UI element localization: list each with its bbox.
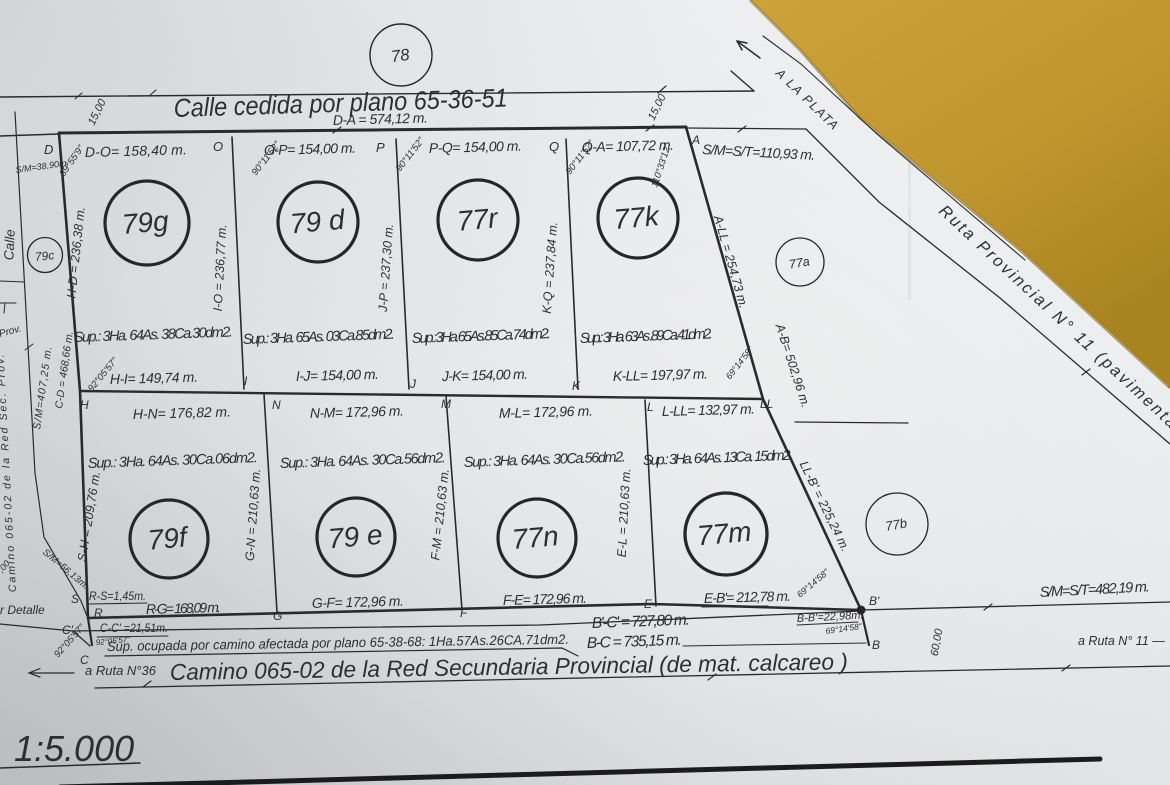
svg-text:79g: 79g bbox=[121, 205, 171, 240]
svg-text:B: B bbox=[872, 638, 880, 652]
svg-text:E: E bbox=[644, 597, 653, 611]
svg-text:D: D bbox=[44, 142, 53, 157]
svg-text:77n: 77n bbox=[511, 520, 560, 555]
svg-text:R-S=1,45m.: R-S=1,45m. bbox=[89, 589, 146, 603]
svg-text:F-E= 172,96 m.: F-E= 172,96 m. bbox=[503, 590, 587, 608]
svg-text:H-I= 149,74 m.: H-I= 149,74 m. bbox=[110, 369, 198, 387]
svg-text:J-K= 154,00 m.: J-K= 154,00 m. bbox=[441, 366, 528, 384]
svg-text:R-G= 168,09 m.: R-G= 168,09 m. bbox=[146, 599, 221, 617]
svg-text:Q: Q bbox=[549, 139, 559, 154]
svg-text:B'-C' = 727,80 m.: B'-C' = 727,80 m. bbox=[592, 612, 691, 632]
svg-text:I-J= 154,00 m.: I-J= 154,00 m. bbox=[296, 366, 379, 384]
svg-text:F: F bbox=[460, 606, 468, 620]
svg-text:79 d: 79 d bbox=[289, 204, 347, 240]
svg-text:B': B' bbox=[869, 594, 880, 608]
svg-text:r Detalle: r Detalle bbox=[0, 603, 45, 617]
svg-text:77k: 77k bbox=[612, 200, 662, 235]
svg-text:S: S bbox=[71, 592, 79, 606]
svg-text:N-M= 172,96 m.: N-M= 172,96 m. bbox=[310, 403, 404, 421]
svg-text:M-L= 172,96 m.: M-L= 172,96 m. bbox=[499, 403, 593, 421]
svg-text:E-B'= 212,78 m.: E-B'= 212,78 m. bbox=[704, 588, 791, 606]
svg-text:79 e: 79 e bbox=[327, 519, 384, 555]
svg-text:B-C = 735,15 m.: B-C = 735,15 m. bbox=[587, 632, 683, 652]
svg-text:K: K bbox=[572, 379, 581, 393]
svg-text:G: G bbox=[273, 609, 282, 623]
svg-text:H-N= 176,82 m.: H-N= 176,82 m. bbox=[133, 403, 231, 422]
svg-text:A: A bbox=[691, 133, 700, 147]
svg-text:C-C' =21,51m.: C-C' =21,51m. bbox=[100, 621, 168, 635]
svg-text:79c: 79c bbox=[34, 248, 55, 264]
svg-text:M: M bbox=[441, 397, 451, 411]
svg-text:H: H bbox=[80, 398, 89, 412]
svg-text:77m: 77m bbox=[696, 516, 753, 552]
svg-text:79f: 79f bbox=[146, 521, 191, 556]
svg-text:LL: LL bbox=[760, 397, 773, 411]
svg-text:O: O bbox=[213, 139, 223, 154]
svg-text:77r: 77r bbox=[456, 202, 501, 237]
svg-text:L: L bbox=[647, 400, 654, 414]
svg-text:N: N bbox=[272, 398, 281, 412]
svg-text:D-O= 158,40 m.: D-O= 158,40 m. bbox=[85, 141, 187, 160]
svg-text:a Ruta N° 11 —: a Ruta N° 11 — bbox=[1078, 634, 1165, 648]
svg-text:R: R bbox=[94, 606, 103, 620]
svg-text:a Ruta N°36: a Ruta N°36 bbox=[85, 663, 157, 678]
svg-text:L-LL= 132,97 m.: L-LL= 132,97 m. bbox=[662, 401, 755, 419]
svg-text:D-A = 574,12 m.: D-A = 574,12 m. bbox=[333, 110, 428, 128]
svg-text:Calle: Calle bbox=[1, 229, 18, 261]
svg-text:J: J bbox=[409, 377, 417, 391]
svg-text:G-F= 172,96 m.: G-F= 172,96 m. bbox=[312, 593, 404, 611]
svg-text:P: P bbox=[376, 140, 385, 155]
svg-text:K-LL= 197,97 m.: K-LL= 197,97 m. bbox=[613, 366, 708, 384]
svg-text:78: 78 bbox=[390, 46, 411, 66]
svg-text:P-Q= 154,00 m.: P-Q= 154,00 m. bbox=[429, 138, 522, 156]
svg-text:1:5.000: 1:5.000 bbox=[14, 728, 134, 769]
